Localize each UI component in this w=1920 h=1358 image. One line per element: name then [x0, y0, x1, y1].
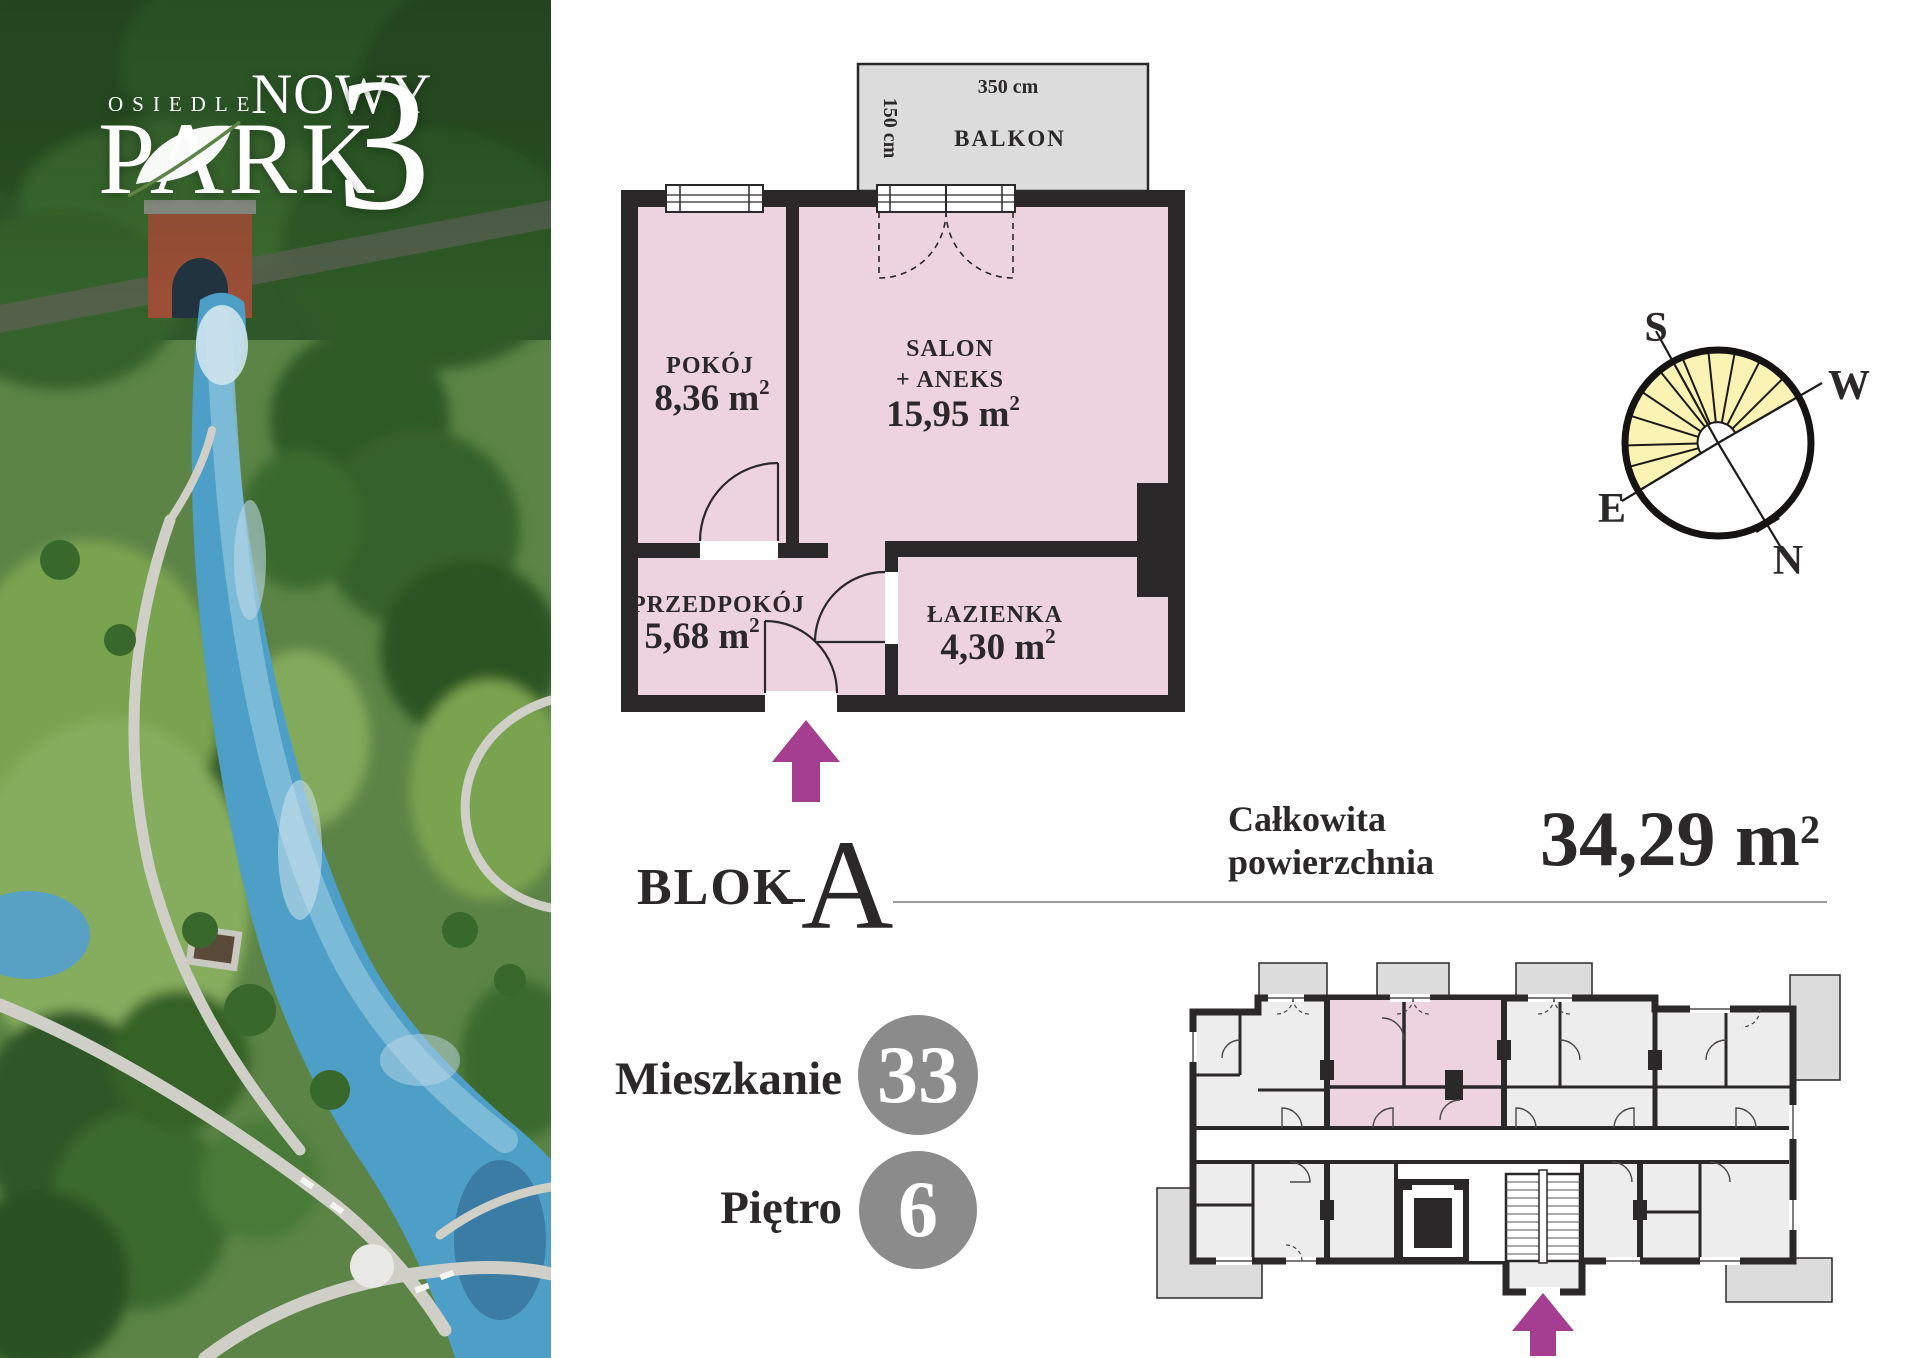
- przedpokoj-area: 5,68 m2: [644, 613, 759, 657]
- pokoj-area: 8,36 m2: [654, 375, 769, 419]
- total-area-sup: 2: [1800, 807, 1820, 852]
- brochure-page: OSIEDLE NOWY PARK 3 350 cm 150 cm BALKON: [0, 0, 1920, 1358]
- salon-name2: + ANEKS: [896, 367, 1004, 393]
- przedpokoj-area-sup: 2: [749, 613, 760, 637]
- floor-label: Piętro: [500, 1181, 842, 1235]
- total-area-label: Całkowita powierzchnia: [1228, 798, 1434, 884]
- compass-south: S: [1644, 305, 1667, 351]
- building-entrance-arrow-icon: [1512, 1293, 1574, 1356]
- przedpokoj-name: PRZEDPOKÓJ: [631, 591, 805, 618]
- compass-east: E: [1598, 486, 1626, 532]
- total-area-label-line1: Całkowita: [1228, 798, 1434, 841]
- highlighted-unit: [1330, 1000, 1502, 1126]
- balcony-name: BALKON: [954, 126, 1066, 151]
- pokoj-window: [666, 185, 763, 212]
- stairs: [1506, 1170, 1580, 1263]
- salon-area: 15,95 m2: [886, 391, 1020, 435]
- logo-leaf-icon: [128, 112, 248, 202]
- salon-area-value: 15,95 m: [886, 394, 1010, 435]
- compass-rose: S W E N: [1580, 245, 1910, 585]
- total-area-value: 34,29 m2: [1540, 800, 1820, 878]
- salon-name: SALON: [906, 336, 994, 362]
- lazienka-name: ŁAZIENKA: [927, 602, 1063, 628]
- balcony: 350 cm 150 cm BALKON: [858, 64, 1148, 191]
- block-label: BLOK: [637, 858, 795, 917]
- pokoj-name: POKÓJ: [666, 352, 754, 379]
- compass-west: W: [1828, 363, 1870, 409]
- lazienka-area-value: 4,30 m: [940, 627, 1045, 668]
- corridor: [1197, 1128, 1789, 1162]
- balcony-width-label: 350 cm: [978, 76, 1039, 98]
- pokoj-area-sup: 2: [759, 375, 770, 399]
- pokoj-area-value: 8,36 m: [654, 378, 759, 419]
- total-area-label-line2: powierzchnia: [1228, 841, 1434, 884]
- apartment-label: Mieszkanie: [500, 1052, 842, 1106]
- apartment-number: 33: [877, 1028, 959, 1122]
- apartment-floor-plan: 350 cm 150 cm BALKON: [560, 40, 1260, 820]
- building-overview-plan: [1140, 935, 1900, 1358]
- total-area-number: 34,29 m: [1540, 795, 1800, 882]
- salon-area-sup: 2: [1009, 391, 1020, 415]
- entrance-arrow-icon: [772, 720, 840, 802]
- floor-number: 6: [898, 1165, 938, 1256]
- park-aerial-photo: OSIEDLE NOWY PARK 3: [0, 0, 551, 1358]
- lazienka-area-sup: 2: [1045, 624, 1056, 648]
- przedpokoj-area-value: 5,68 m: [644, 616, 749, 657]
- logo-number: 3: [336, 36, 431, 254]
- summary-divider-line: [893, 901, 1827, 903]
- logo: OSIEDLE NOWY PARK 3: [0, 0, 551, 260]
- balcony-depth-label: 150 cm: [879, 98, 901, 159]
- apartment-number-badge: 33: [858, 1015, 978, 1135]
- lazienka-area: 4,30 m2: [940, 624, 1055, 668]
- compass-north: N: [1773, 538, 1803, 584]
- floor-number-badge: 6: [859, 1151, 977, 1269]
- balcony-door-window: [877, 185, 1015, 212]
- elevator: [1400, 1180, 1466, 1260]
- path-junction: [350, 1244, 394, 1288]
- block-value: A: [801, 821, 893, 949]
